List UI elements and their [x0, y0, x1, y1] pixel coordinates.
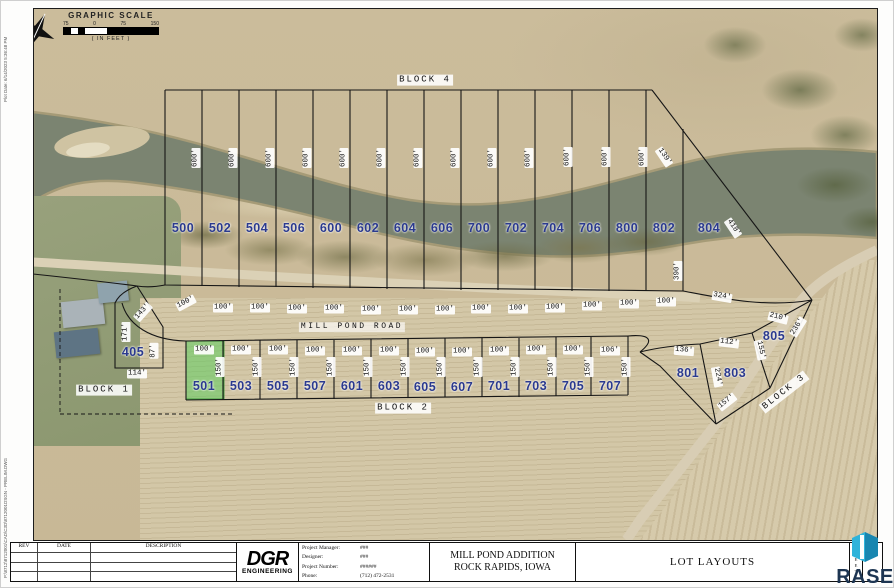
scale-tick: 75: [63, 21, 69, 27]
revision-row: [11, 552, 236, 562]
sheet-title: LOT LAYOUTS: [575, 543, 849, 581]
revision-header: REV: [11, 543, 37, 552]
project-title-line1: MILL POND ADDITION: [450, 550, 555, 563]
graphic-scale-units: ( IN FEET ): [55, 36, 167, 42]
graphic-scale: GRAPHIC SCALE 75075150 ( IN FEET ): [55, 11, 167, 42]
project-info-row: Designer:###: [302, 554, 426, 560]
block-label: BLOCK 4: [397, 75, 453, 86]
project-title-line2: ROCK RAPIDS, IOWA: [454, 562, 551, 575]
company-name: DGR: [247, 550, 288, 568]
rase-logo-text: RASE: [836, 567, 894, 587]
revision-row: [11, 571, 236, 581]
project-info-row: Project Manager:###: [302, 545, 426, 551]
plot-date-text: Plot Date: 6/14/2023 5:36:48 PM: [3, 37, 8, 102]
revision-row: [11, 562, 236, 572]
project-title: MILL POND ADDITION ROCK RAPIDS, IOWA: [429, 543, 575, 581]
block-label: BLOCK 1: [76, 385, 132, 396]
road-name-label: MILL POND ROAD: [299, 322, 405, 332]
scale-tick: 0: [93, 21, 96, 27]
file-path-text: P:\8712\8712001\CAD\C3D\8712001DSGN - PR…: [3, 458, 8, 578]
rase-logo-icon: [852, 532, 878, 562]
map-area: 600'600'600'600'600'600'600'600'600'600'…: [0, 0, 894, 588]
revision-header: DATE: [37, 543, 90, 552]
block-label: BLOCK 3: [759, 371, 810, 414]
company-tagline: ENGINEERING: [242, 568, 293, 575]
revision-table: REVDATEDESCRIPTION: [11, 543, 236, 581]
block-label: BLOCK 2: [375, 403, 431, 414]
project-info-row: Phone:(712) 472-2531: [302, 573, 426, 579]
scale-tick: 75: [121, 21, 127, 27]
north-arrow-icon: [14, 8, 60, 54]
title-block: REVDATEDESCRIPTION DGR ENGINEERING Proje…: [10, 542, 883, 582]
project-info-fields: Project Manager:###Designer:###Project N…: [298, 543, 429, 581]
revision-header: DESCRIPTION: [90, 543, 236, 552]
scale-tick: 150: [151, 21, 159, 27]
graphic-scale-title: GRAPHIC SCALE: [55, 11, 167, 20]
graphic-scale-bar: [63, 27, 159, 35]
block-labels-layer: BLOCK 4BLOCK 1BLOCK 2BLOCK 3: [0, 0, 894, 588]
plat-sheet: Plot Date: 6/14/2023 5:36:48 PM P:\8712\…: [0, 0, 894, 588]
project-info-row: Project Number:######: [302, 564, 426, 570]
rase-watermark: RASE: [836, 532, 894, 587]
company-logo: DGR ENGINEERING: [236, 543, 298, 581]
